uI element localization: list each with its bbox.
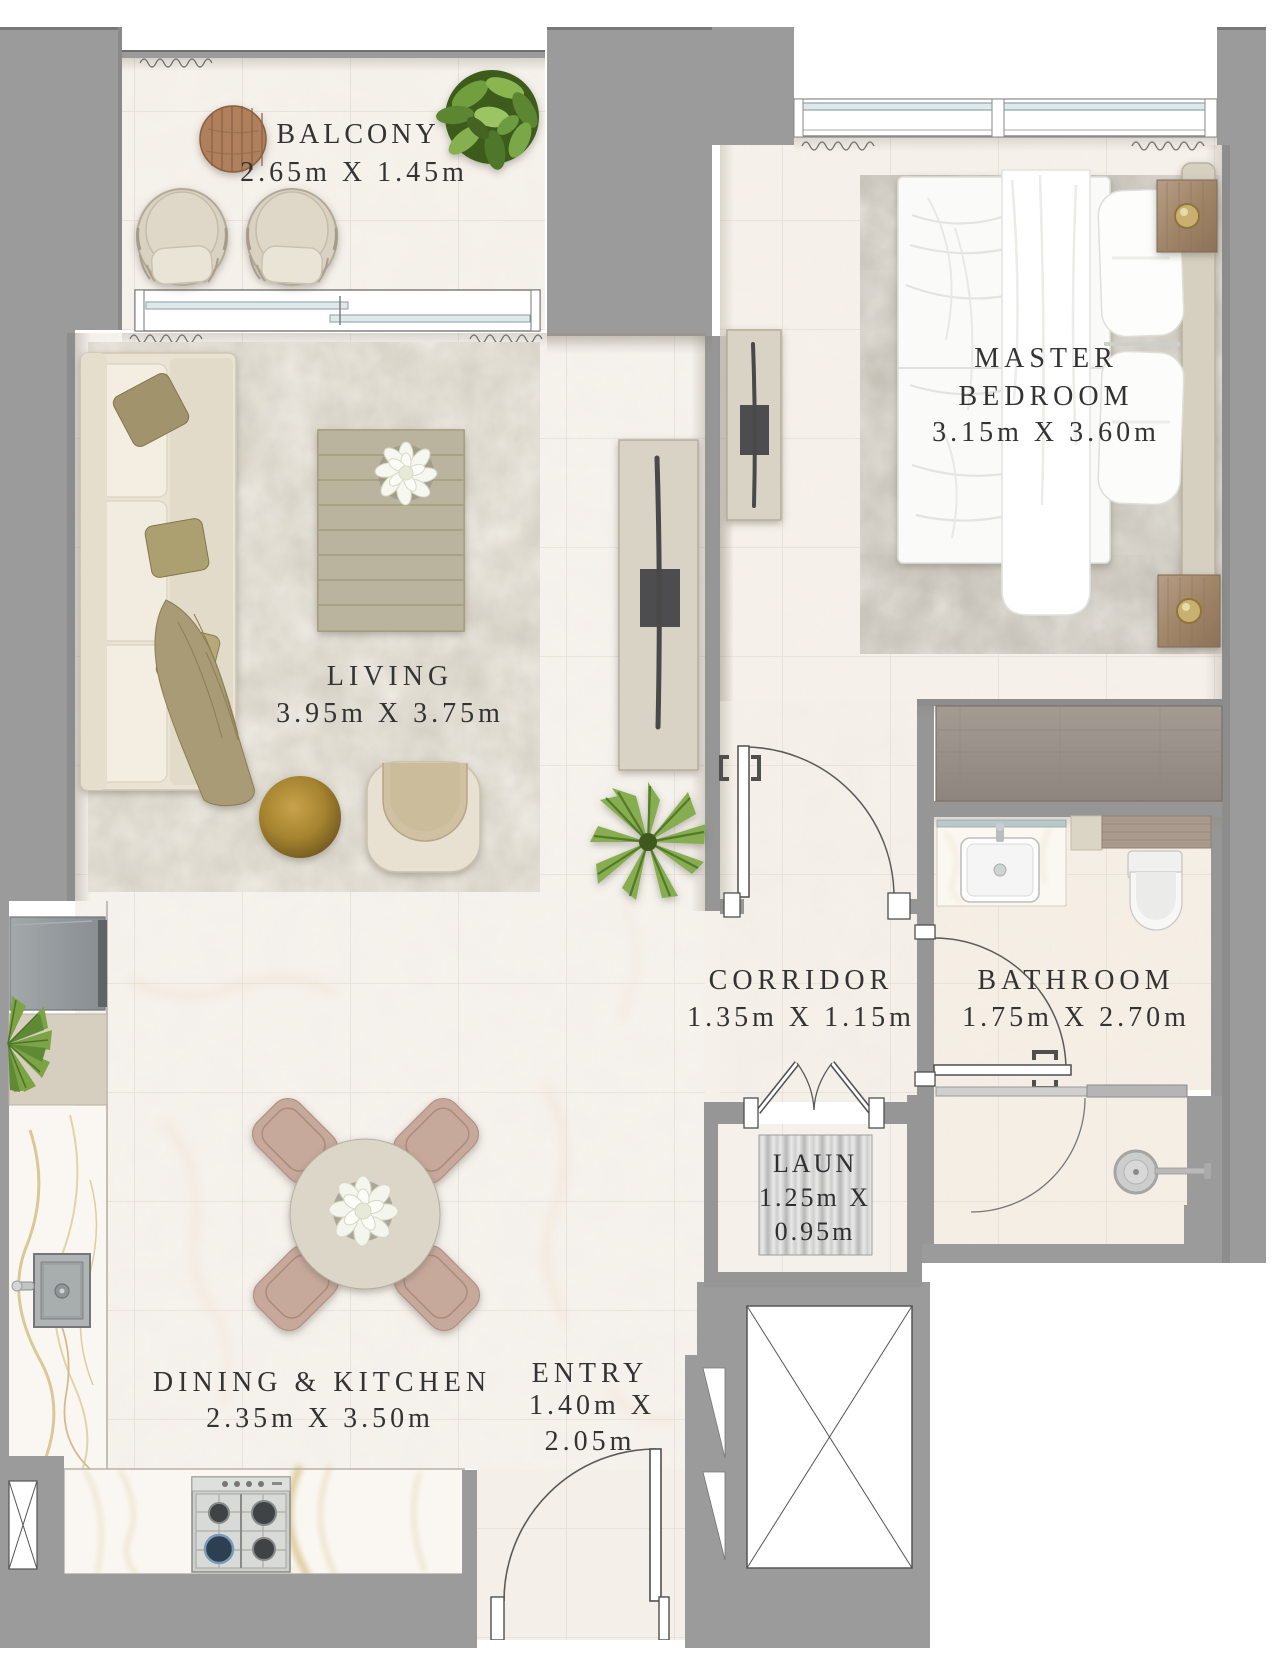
svg-text:BALCONY: BALCONY: [276, 119, 439, 150]
svg-text:2.65m X 1.45m: 2.65m X 1.45m: [240, 157, 468, 188]
svg-text:1.40m X: 1.40m X: [529, 1390, 655, 1421]
svg-text:3.95m X 3.75m: 3.95m X 3.75m: [276, 698, 504, 729]
svg-text:1.35m X 1.15m: 1.35m X 1.15m: [687, 1002, 915, 1033]
svg-text:LAUN: LAUN: [773, 1149, 857, 1178]
svg-text:CORRIDOR: CORRIDOR: [709, 965, 894, 996]
svg-text:MASTER: MASTER: [974, 343, 1118, 374]
svg-text:2.05m: 2.05m: [545, 1426, 636, 1457]
svg-text:3.15m X 3.60m: 3.15m X 3.60m: [932, 417, 1160, 448]
svg-text:1.25m X: 1.25m X: [759, 1183, 871, 1212]
svg-text:BATHROOM: BATHROOM: [977, 965, 1174, 996]
svg-text:BEDROOM: BEDROOM: [958, 381, 1133, 412]
svg-text:LIVING: LIVING: [327, 661, 453, 692]
svg-text:2.35m X 3.50m: 2.35m X 3.50m: [206, 1403, 434, 1434]
svg-text:1.75m X 2.70m: 1.75m X 2.70m: [962, 1002, 1190, 1033]
svg-text:0.95m: 0.95m: [775, 1217, 856, 1246]
svg-text:DINING & KITCHEN: DINING & KITCHEN: [153, 1367, 491, 1398]
svg-text:ENTRY: ENTRY: [532, 1358, 649, 1389]
